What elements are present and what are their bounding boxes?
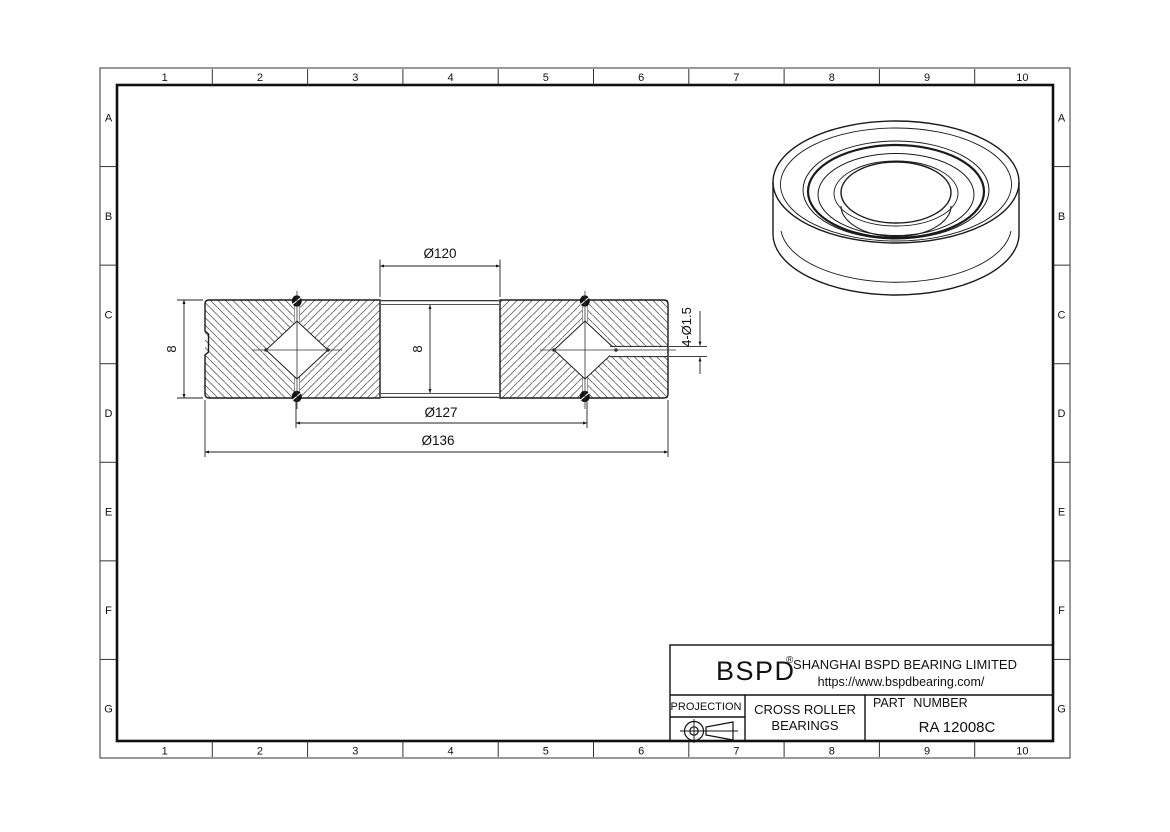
column-label: 10 — [1016, 746, 1028, 758]
column-label: 1 — [162, 746, 168, 758]
column-label: 5 — [543, 72, 549, 84]
row-label: D — [1058, 408, 1066, 420]
iso-bore-depth-arc — [841, 206, 951, 236]
section-view: Ø120 Ø127 Ø136 8 8 4-Ø1.5 — [164, 246, 707, 457]
column-label: 9 — [924, 746, 930, 758]
row-label: F — [105, 605, 112, 617]
first-angle-projection-icon — [680, 719, 738, 743]
drawing-page: 12345678910 12345678910 ABCDEFG ABCDEFG — [0, 0, 1170, 827]
company-name: SHANGHAI BSPD BEARING LIMITED — [793, 657, 1017, 672]
website-url: https://www.bspdbearing.com/ — [818, 675, 985, 689]
column-label: 5 — [543, 746, 549, 758]
title-block: BSPD ® SHANGHAI BSPD BEARING LIMITED htt… — [670, 645, 1053, 743]
row-label: C — [1058, 309, 1066, 321]
column-label: 10 — [1016, 72, 1028, 84]
row-label: A — [105, 112, 113, 124]
row-label: B — [1058, 211, 1065, 223]
brand-logo: BSPD — [716, 656, 796, 686]
column-labels-top: 12345678910 — [162, 72, 1029, 84]
dim-outer-diameter: Ø136 — [421, 433, 454, 448]
engineering-drawing: 12345678910 12345678910 ABCDEFG ABCDEFG — [0, 0, 1170, 827]
column-label: 2 — [257, 746, 263, 758]
dim-width-center: 8 — [410, 345, 425, 352]
bore-edge-lines — [381, 301, 499, 398]
dim-grease-holes: 4-Ø1.5 — [679, 307, 694, 347]
dim-bore-diameter: Ø120 — [423, 246, 456, 261]
column-label: 9 — [924, 72, 930, 84]
row-label: G — [104, 704, 113, 716]
column-label: 8 — [829, 746, 835, 758]
column-label: 3 — [352, 746, 358, 758]
column-label: 6 — [638, 72, 644, 84]
row-label: E — [105, 507, 112, 519]
drawing-frame: 12345678910 12345678910 ABCDEFG ABCDEFG — [100, 68, 1070, 758]
column-label: 4 — [447, 746, 453, 758]
row-labels-right: ABCDEFG — [1057, 112, 1066, 715]
dim-pitch-diameter: Ø127 — [424, 405, 457, 420]
product-name-line2: BEARINGS — [771, 718, 839, 733]
row-label: F — [1058, 605, 1065, 617]
row-label: C — [105, 309, 113, 321]
row-label: A — [1058, 112, 1066, 124]
projection-label: PROJECTION — [671, 701, 742, 713]
row-label: B — [105, 211, 112, 223]
column-label: 1 — [162, 72, 168, 84]
column-label: 7 — [733, 746, 739, 758]
row-label: E — [1058, 507, 1065, 519]
iso-bore-chamfer — [834, 161, 958, 226]
column-label: 2 — [257, 72, 263, 84]
column-label: 4 — [447, 72, 453, 84]
part-number-label: PART NUMBER — [873, 696, 968, 710]
border-ticks — [101, 69, 1070, 757]
column-label: 8 — [829, 72, 835, 84]
column-label: 7 — [733, 72, 739, 84]
iso-bore-edge — [841, 162, 951, 223]
product-name-line1: CROSS ROLLER — [754, 702, 856, 717]
dim-width-left: 8 — [164, 345, 179, 352]
iso-ring-split-outer — [803, 141, 989, 239]
row-label: D — [105, 408, 113, 420]
outer-border — [100, 68, 1070, 758]
grease-hole-slot — [610, 347, 667, 357]
isometric-view — [773, 121, 1019, 295]
inner-border — [117, 85, 1053, 741]
row-labels-left: ABCDEFG — [104, 112, 113, 715]
column-label: 6 — [638, 746, 644, 758]
column-labels-bottom: 12345678910 — [162, 746, 1029, 758]
column-label: 3 — [352, 72, 358, 84]
row-label: G — [1057, 704, 1066, 716]
part-number-value: RA 12008C — [919, 719, 996, 736]
